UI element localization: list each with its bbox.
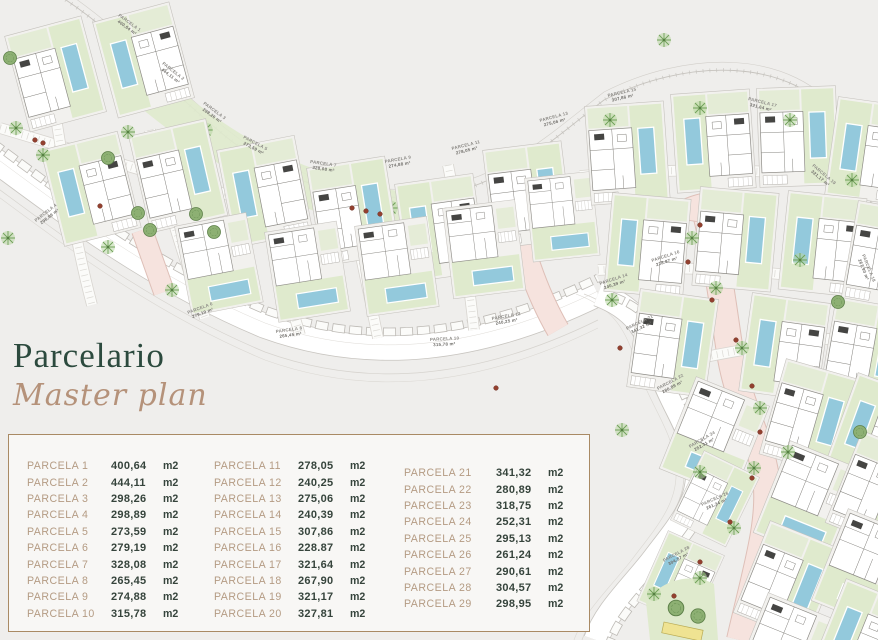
area-unit: m2 <box>163 542 178 554</box>
parcel-label: PARCELA 11 <box>214 460 298 472</box>
shrub-icon <box>494 386 499 391</box>
parcel-area-value: 304,57 <box>496 582 548 594</box>
shrub-icon <box>672 594 677 599</box>
villa-parcel <box>93 2 195 118</box>
legend-row: PARCELA 20327,81m2 <box>214 606 365 622</box>
parcel-label: PARCELA 6 <box>27 542 111 554</box>
parcel-label: PARCELA 13 <box>214 493 298 505</box>
parcel-area-value: 240,25 <box>298 477 350 489</box>
shrub-icon <box>698 223 703 228</box>
legend-row: PARCELA 4298,89m2 <box>27 507 178 523</box>
legend-row: PARCELA 8265,45m2 <box>27 573 178 589</box>
parcel-area-value: 315,78 <box>111 608 163 620</box>
area-unit: m2 <box>350 608 365 620</box>
shrub-icon <box>33 138 38 143</box>
map-parcel-label: PARCELA 15307,86 m² <box>607 86 638 103</box>
palm-tree-icon <box>9 121 23 135</box>
legend-row: PARCELA 21341,32m2 <box>404 465 563 481</box>
palm-tree-icon <box>693 571 707 585</box>
area-unit: m2 <box>163 559 178 571</box>
area-unit: m2 <box>163 477 178 489</box>
parcel-area-value: 228.87 <box>298 542 350 554</box>
legend-column: PARCELA 21341,32m2PARCELA 22280,89m2PARC… <box>404 465 563 613</box>
parcel-label: PARCELA 15 <box>214 526 298 538</box>
parcel-label: PARCELA 23 <box>404 500 496 512</box>
legend-row: PARCELA 5273,59m2 <box>27 524 178 540</box>
legend-row: PARCELA 10315,78m2 <box>27 606 178 622</box>
villa-parcel <box>692 187 779 293</box>
tree-icon <box>854 426 867 439</box>
parcel-area-value: 295,13 <box>496 533 548 545</box>
legend-row: PARCELA 7328,08m2 <box>27 556 178 572</box>
shrub-icon <box>41 141 46 146</box>
parcel-area-value: 265,45 <box>111 575 163 587</box>
area-unit: m2 <box>163 575 178 587</box>
area-unit: m2 <box>350 526 365 538</box>
tree-icon <box>691 609 705 623</box>
parcel-area-value: 321,17 <box>298 591 350 603</box>
area-unit: m2 <box>350 591 365 603</box>
map-parcel-label: PARCELA 9274,88 m² <box>384 154 412 169</box>
shrub-icon <box>758 430 763 435</box>
parcel-area-value: 327,81 <box>298 608 350 620</box>
parcel-label: PARCELA 12 <box>214 477 298 489</box>
legend-row: PARCELA 16228.87m2 <box>214 540 365 556</box>
parcel-label: PARCELA 24 <box>404 516 496 528</box>
area-unit: m2 <box>163 591 178 603</box>
palm-tree-icon <box>735 341 749 355</box>
area-unit: m2 <box>350 460 365 472</box>
shrub-icon <box>686 260 691 265</box>
legend-row: PARCELA 27290,61m2 <box>404 563 563 579</box>
parcel-legend: PARCELA 1400,64m2PARCELA 2444,11m2PARCEL… <box>8 434 590 632</box>
area-unit: m2 <box>163 509 178 521</box>
parcel-label: PARCELA 5 <box>27 526 111 538</box>
parcel-area-value: 341,32 <box>496 467 548 479</box>
area-unit: m2 <box>548 566 563 578</box>
legend-row: PARCELA 12240,25m2 <box>214 474 365 490</box>
palm-tree-icon <box>615 423 629 437</box>
map-parcel-label: PARCELA 11278,05 m² <box>451 139 482 156</box>
legend-row: PARCELA 29298,95m2 <box>404 596 563 612</box>
area-unit: m2 <box>548 500 563 512</box>
palm-tree-icon <box>693 465 707 479</box>
parcel-label: PARCELA 14 <box>214 509 298 521</box>
tree-icon <box>102 152 115 165</box>
parcel-label: PARCELA 1 <box>27 460 111 472</box>
palm-tree-icon <box>603 113 617 127</box>
shrub-icon <box>734 338 739 343</box>
area-unit: m2 <box>163 460 178 472</box>
parcel-area-value: 273,59 <box>111 526 163 538</box>
area-unit: m2 <box>163 493 178 505</box>
parcel-label: PARCELA 2 <box>27 477 111 489</box>
parcel-label: PARCELA 10 <box>27 608 111 620</box>
palm-tree-icon <box>605 293 619 307</box>
palm-tree-icon <box>121 125 135 139</box>
villa-parcel <box>265 221 351 322</box>
area-unit: m2 <box>548 533 563 545</box>
parcel-area-value: 252,31 <box>496 516 548 528</box>
parcel-label: PARCELA 3 <box>27 493 111 505</box>
legend-row: PARCELA 13275,06m2 <box>214 491 365 507</box>
shrub-icon <box>750 476 755 481</box>
parcel-label: PARCELA 26 <box>404 549 496 561</box>
legend-row: PARCELA 18267,90m2 <box>214 573 365 589</box>
legend-row: PARCELA 28304,57m2 <box>404 580 563 596</box>
legend-row: PARCELA 9274,88m2 <box>27 589 178 605</box>
villa-parcel <box>443 200 526 299</box>
parcel-area-value: 298,26 <box>111 493 163 505</box>
parcel-label: PARCELA 20 <box>214 608 298 620</box>
parcel-area-value: 400,64 <box>111 460 163 472</box>
shrub-icon <box>350 206 355 211</box>
palm-tree-icon <box>36 148 50 162</box>
legend-row: PARCELA 19321,17m2 <box>214 589 365 605</box>
page-title: Parcelario <box>13 336 208 376</box>
area-unit: m2 <box>548 516 563 528</box>
area-unit: m2 <box>548 484 563 496</box>
shrub-icon <box>364 209 369 214</box>
villa-parcel <box>355 216 440 316</box>
parcel-area-value: 298,89 <box>111 509 163 521</box>
parcel-area-value: 298,95 <box>496 598 548 610</box>
palm-tree-icon <box>101 240 115 254</box>
palm-tree-icon <box>657 33 671 47</box>
parcel-area-value: 321,64 <box>298 559 350 571</box>
area-unit: m2 <box>163 526 178 538</box>
parcel-area-value: 240,39 <box>298 509 350 521</box>
parcel-label: PARCELA 8 <box>27 575 111 587</box>
area-unit: m2 <box>163 608 178 620</box>
area-unit: m2 <box>548 598 563 610</box>
palm-tree-icon <box>747 461 761 475</box>
parcel-area-value: 290,61 <box>496 566 548 578</box>
parcel-label: PARCELA 19 <box>214 591 298 603</box>
legend-column: PARCELA 1400,64m2PARCELA 2444,11m2PARCEL… <box>27 458 178 622</box>
legend-row: PARCELA 15307,86m2 <box>214 524 365 540</box>
map-parcel-label: PARCELA 13275,06 m² <box>539 110 570 128</box>
shrub-icon <box>618 346 623 351</box>
tree-icon <box>208 226 221 239</box>
parcel-area-value: 261,24 <box>496 549 548 561</box>
area-unit: m2 <box>350 477 365 489</box>
area-unit: m2 <box>548 549 563 561</box>
parcel-area-value: 328,08 <box>111 559 163 571</box>
master-plan-page: PARCELA 1400,64 m²PARCELA 2444,11 m²PARC… <box>0 0 878 640</box>
shrub-icon <box>750 384 755 389</box>
legend-row: PARCELA 6279,19m2 <box>27 540 178 556</box>
legend-row: PARCELA 22280,89m2 <box>404 481 563 497</box>
palm-tree-icon <box>685 231 699 245</box>
parcel-area-value: 318,75 <box>496 500 548 512</box>
area-unit: m2 <box>350 559 365 571</box>
legend-column: PARCELA 11278,05m2PARCELA 12240,25m2PARC… <box>214 458 365 622</box>
villa-parcel <box>524 171 600 262</box>
legend-row: PARCELA 24252,31m2 <box>404 514 563 530</box>
shrub-icon <box>378 212 383 217</box>
palm-tree-icon <box>845 173 859 187</box>
palm-tree-icon <box>709 281 723 295</box>
villa-parcel <box>585 101 671 205</box>
legend-row: PARCELA 1400,64m2 <box>27 458 178 474</box>
parcel-area-value: 278,05 <box>298 460 350 472</box>
parcel-label: PARCELA 7 <box>27 559 111 571</box>
tree-icon <box>668 600 684 616</box>
legend-row: PARCELA 2444,11m2 <box>27 474 178 490</box>
palm-tree-icon <box>1 231 15 245</box>
parcel-label: PARCELA 28 <box>404 582 496 594</box>
area-unit: m2 <box>548 467 563 479</box>
palm-tree-icon <box>793 253 807 267</box>
palm-tree-icon <box>783 113 797 127</box>
legend-row: PARCELA 25295,13m2 <box>404 531 563 547</box>
parcel-label: PARCELA 21 <box>404 467 496 479</box>
parcel-label: PARCELA 29 <box>404 598 496 610</box>
legend-row: PARCELA 11278,05m2 <box>214 458 365 474</box>
area-unit: m2 <box>350 493 365 505</box>
parcel-label: PARCELA 18 <box>214 575 298 587</box>
parcel-area-value: 307,86 <box>298 526 350 538</box>
legend-row: PARCELA 3298,26m2 <box>27 491 178 507</box>
parcel-label: PARCELA 22 <box>404 484 496 496</box>
palm-tree-icon <box>781 445 795 459</box>
legend-row: PARCELA 14240,39m2 <box>214 507 365 523</box>
parcel-area-value: 444,11 <box>111 477 163 489</box>
area-unit: m2 <box>350 575 365 587</box>
villa-parcel <box>671 89 757 193</box>
parcel-label: PARCELA 9 <box>27 591 111 603</box>
parcel-label: PARCELA 16 <box>214 542 298 554</box>
page-subtitle: Master plan <box>13 378 208 413</box>
parcel-area-value: 279,19 <box>111 542 163 554</box>
legend-row: PARCELA 23318,75m2 <box>404 498 563 514</box>
parcel-area-value: 280,89 <box>496 484 548 496</box>
tree-icon <box>190 208 203 221</box>
tree-icon <box>132 207 145 220</box>
parcel-area-value: 267,90 <box>298 575 350 587</box>
villa-parcel <box>41 131 142 246</box>
parcel-label: PARCELA 4 <box>27 509 111 521</box>
tree-icon <box>832 296 845 309</box>
area-unit: m2 <box>350 542 365 554</box>
parcel-label: PARCELA 27 <box>404 566 496 578</box>
shrub-icon <box>98 204 103 209</box>
parcel-label: PARCELA 25 <box>404 533 496 545</box>
parcel-area-value: 274,88 <box>111 591 163 603</box>
parcel-label: PARCELA 17 <box>214 559 298 571</box>
palm-tree-icon <box>753 401 767 415</box>
shrub-icon <box>698 560 703 565</box>
tree-icon <box>4 52 17 65</box>
parcel-area-value: 275,06 <box>298 493 350 505</box>
legend-row: PARCELA 17321,64m2 <box>214 556 365 572</box>
palm-tree-icon <box>165 283 179 297</box>
palm-tree-icon <box>693 101 707 115</box>
tree-icon <box>144 224 157 237</box>
area-unit: m2 <box>350 509 365 521</box>
palm-tree-icon <box>647 587 661 601</box>
villa-parcel <box>5 16 107 132</box>
area-unit: m2 <box>548 582 563 594</box>
legend-row: PARCELA 26261,24m2 <box>404 547 563 563</box>
shrub-icon <box>728 520 733 525</box>
title-block: Parcelario Master plan <box>13 336 208 413</box>
shrub-icon <box>710 298 715 303</box>
